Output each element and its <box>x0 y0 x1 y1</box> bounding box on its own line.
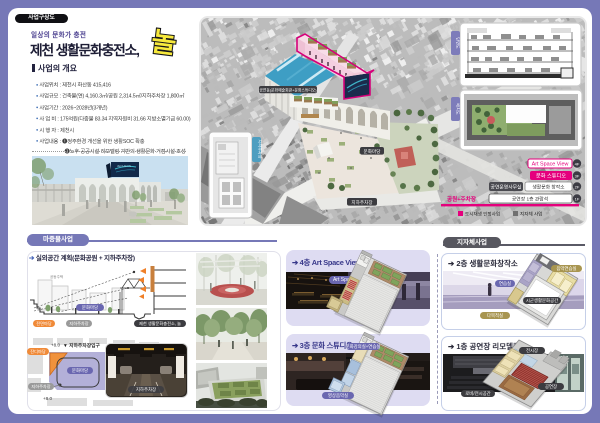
svg-text:연습실: 연습실 <box>499 280 511 286</box>
svg-text:영상음악실: 영상음악실 <box>328 392 348 399</box>
svg-text:시군생활문화공간: 시군생활문화공간 <box>526 297 558 304</box>
svg-text:로비/전시공간: 로비/전시공간 <box>465 390 490 397</box>
svg-text:다목적실: 다목적실 <box>487 312 503 319</box>
svg-text:공연장: 공연장 <box>545 383 557 389</box>
svg-text:음악연습실: 음악연습실 <box>556 265 576 272</box>
svg-text:전시장: 전시장 <box>526 347 538 353</box>
svg-text:문화강의실+연습실: 문화강의실+연습실 <box>346 343 381 350</box>
